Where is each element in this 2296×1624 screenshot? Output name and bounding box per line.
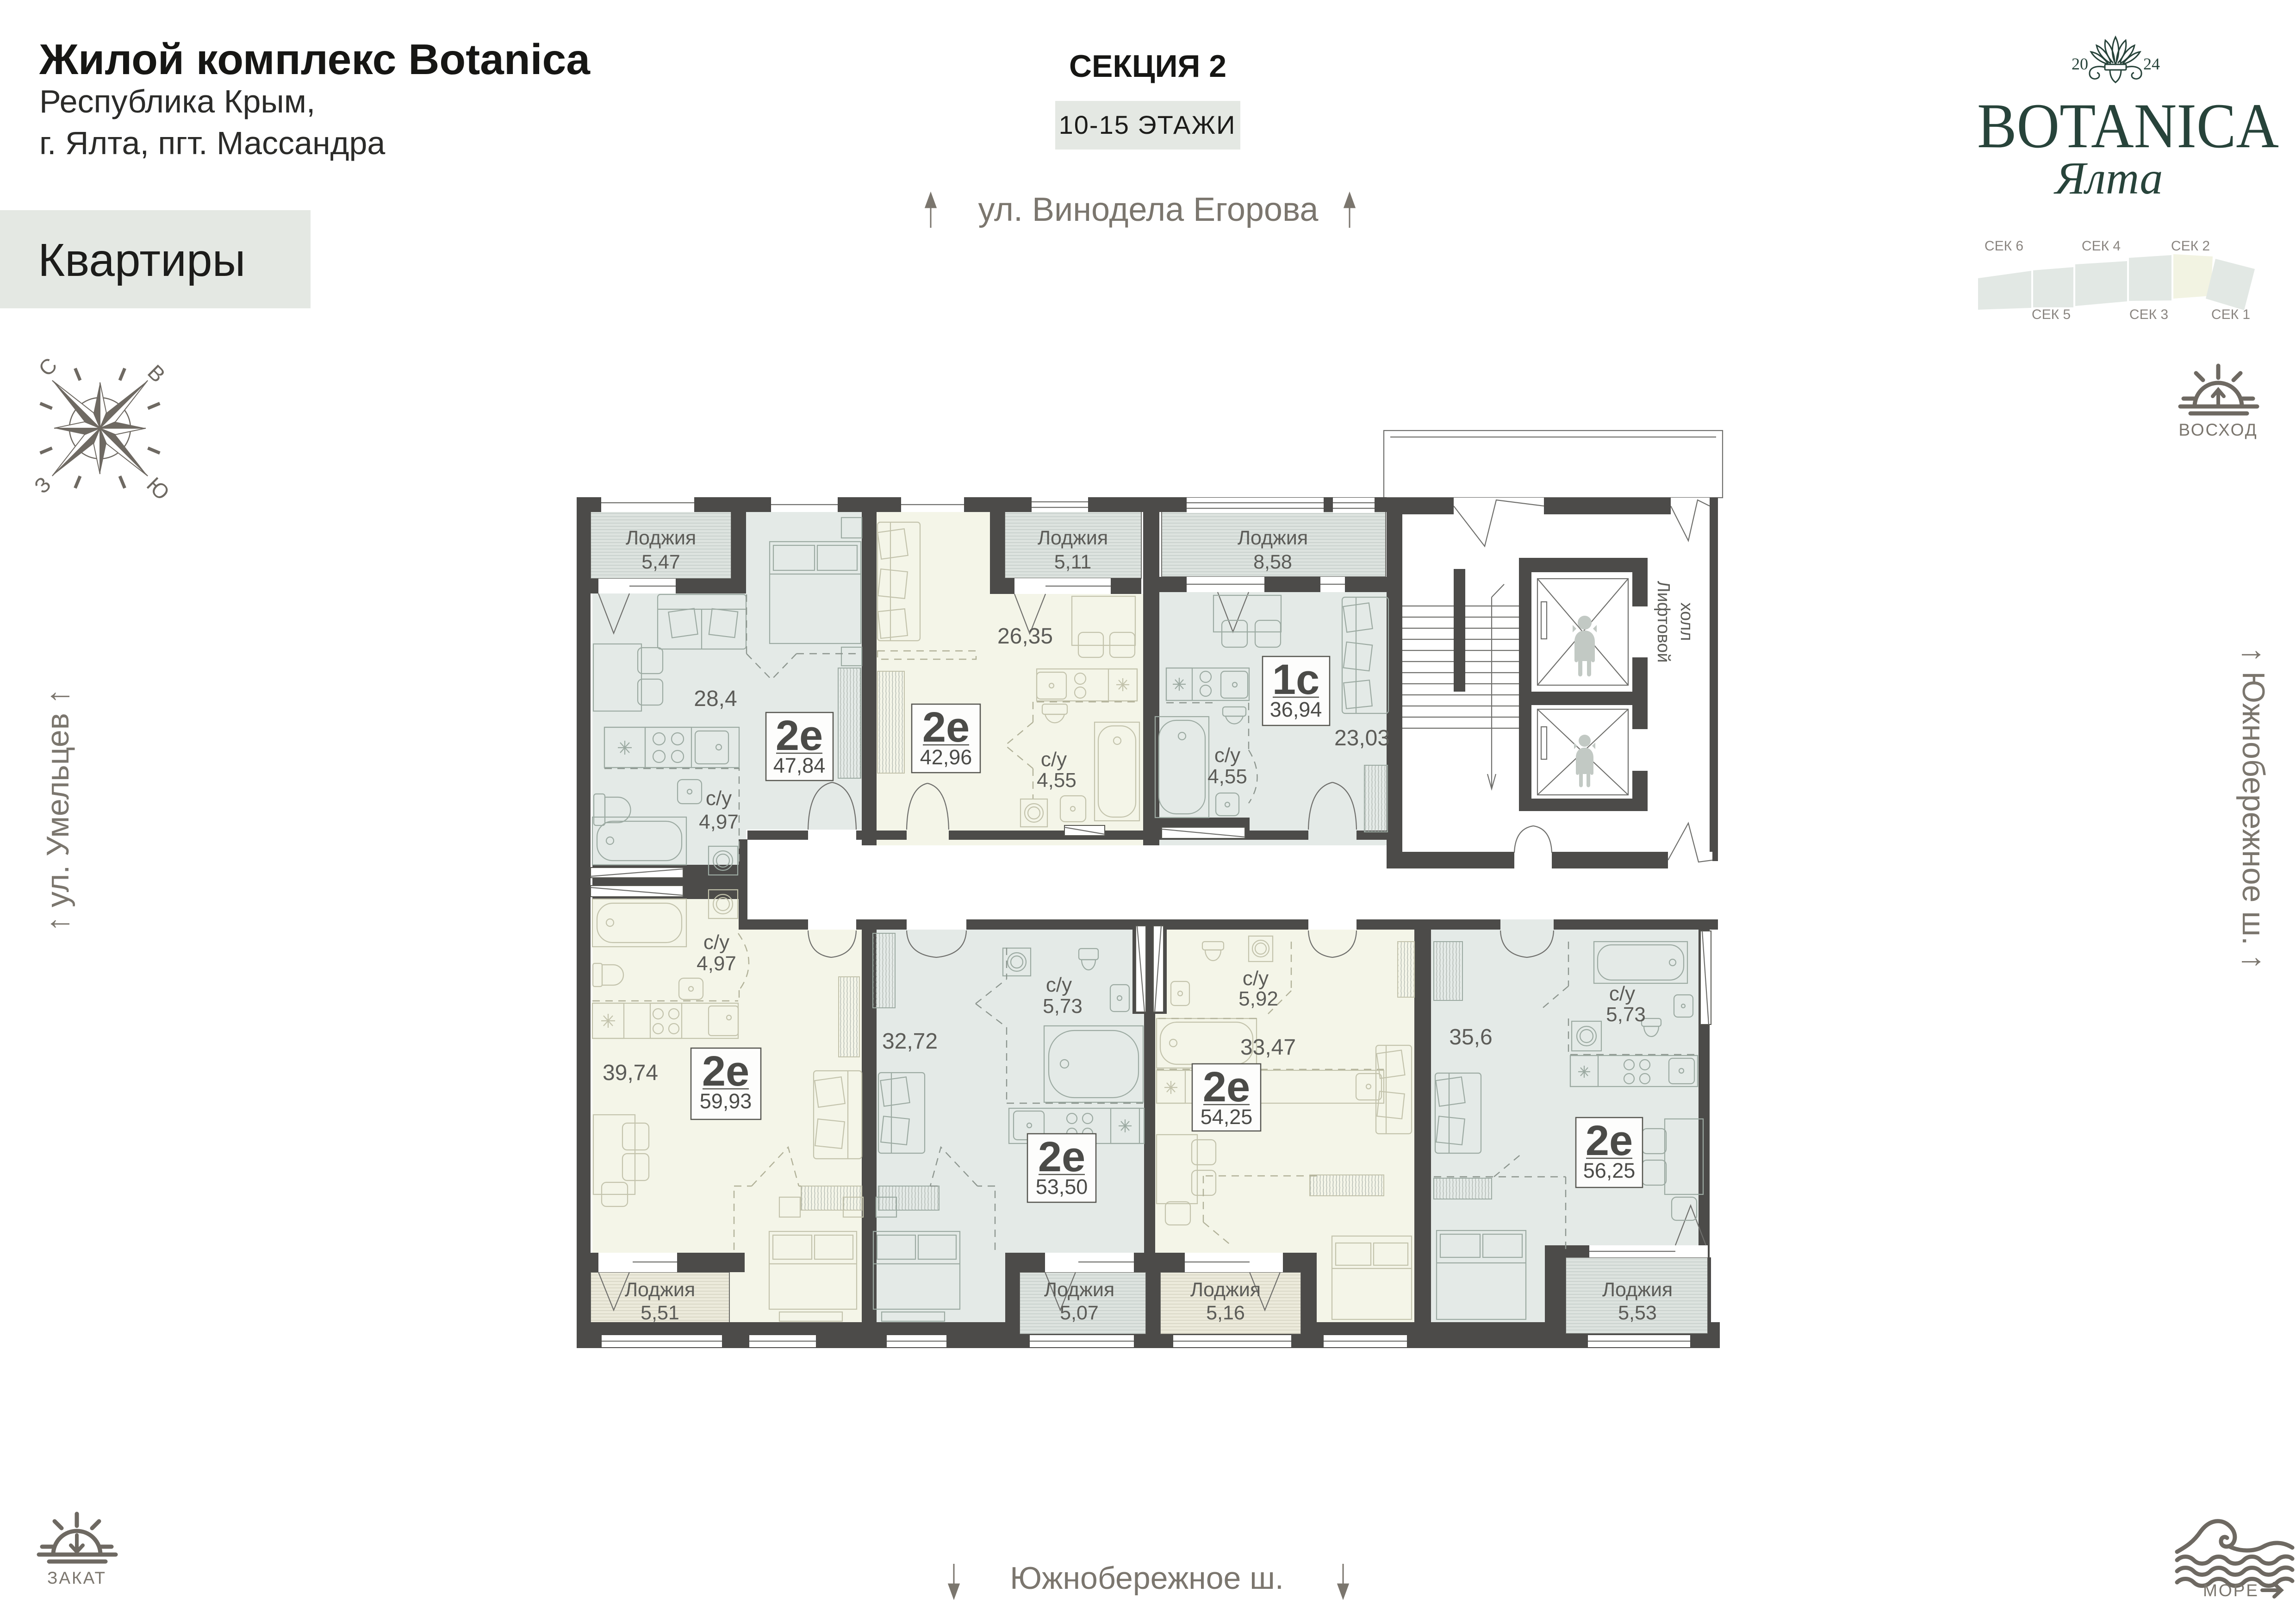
svg-text:36,94: 36,94 — [1270, 698, 1322, 721]
svg-text:с/у: с/у — [1046, 974, 1072, 996]
svg-text:54,25: 54,25 — [1201, 1105, 1253, 1129]
svg-text:СЕК 1: СЕК 1 — [2211, 307, 2250, 322]
svg-text:↑ Южнобережное ш. ↑: ↑ Южнобережное ш. ↑ — [2236, 647, 2271, 969]
svg-text:Жилой комплекс Botanica: Жилой комплекс Botanica — [39, 35, 591, 83]
svg-text:↑ ул. Умельцев ↑: ↑ ул. Умельцев ↑ — [40, 688, 75, 931]
svg-text:с/у: с/у — [1041, 748, 1067, 771]
svg-text:5,07: 5,07 — [1060, 1302, 1099, 1324]
svg-text:2е: 2е — [1038, 1133, 1085, 1181]
svg-text:4,97: 4,97 — [697, 952, 736, 975]
svg-text:39,74: 39,74 — [603, 1061, 658, 1085]
svg-text:с/у: с/у — [1214, 744, 1240, 767]
svg-text:4,97: 4,97 — [699, 811, 739, 833]
svg-text:Республика Крым,: Республика Крым, — [39, 83, 315, 119]
svg-text:с/у: с/у — [1609, 982, 1635, 1005]
svg-text:42,96: 42,96 — [920, 745, 972, 769]
svg-text:5,73: 5,73 — [1043, 995, 1083, 1018]
svg-text:Лифтовой: Лифтовой — [1654, 581, 1673, 663]
svg-text:СЕК 2: СЕК 2 — [2171, 238, 2210, 254]
svg-text:5,53: 5,53 — [1618, 1302, 1657, 1324]
svg-text:Лоджия: Лоджия — [1038, 527, 1108, 549]
svg-text:20: 20 — [2072, 55, 2088, 73]
svg-text:2е: 2е — [1203, 1063, 1250, 1111]
svg-text:47,84: 47,84 — [773, 754, 826, 777]
svg-text:МОРЕ: МОРЕ — [2203, 1581, 2259, 1600]
svg-text:с/у: с/у — [706, 787, 732, 810]
svg-text:СЕКЦИЯ 2: СЕКЦИЯ 2 — [1069, 49, 1226, 84]
svg-text:СЕК 6: СЕК 6 — [1985, 238, 2023, 254]
svg-text:ЗАКАТ: ЗАКАТ — [47, 1568, 106, 1587]
svg-text:ВОСХОД: ВОСХОД — [2178, 420, 2258, 439]
svg-text:5,47: 5,47 — [641, 551, 680, 573]
svg-text:28,4: 28,4 — [694, 687, 737, 711]
svg-text:56,25: 56,25 — [1583, 1159, 1636, 1182]
svg-text:8,58: 8,58 — [1253, 551, 1292, 573]
svg-text:33,47: 33,47 — [1240, 1035, 1296, 1060]
svg-text:26,35: 26,35 — [997, 624, 1053, 649]
svg-text:Лоджия: Лоджия — [1044, 1279, 1114, 1301]
svg-text:24: 24 — [2143, 55, 2160, 73]
svg-text:Квартиры: Квартиры — [38, 234, 245, 286]
svg-text:СЕК 4: СЕК 4 — [2082, 238, 2121, 254]
svg-text:2е: 2е — [922, 704, 970, 751]
svg-text:с/у: с/у — [703, 931, 729, 954]
svg-text:Лоджия: Лоджия — [1602, 1279, 1673, 1301]
svg-text:5,92: 5,92 — [1238, 987, 1278, 1010]
svg-text:Лоджия: Лоджия — [1190, 1279, 1261, 1301]
svg-text:32,72: 32,72 — [882, 1029, 938, 1054]
svg-text:2е: 2е — [702, 1048, 749, 1095]
svg-text:BOTANICA: BOTANICA — [1977, 90, 2279, 161]
svg-text:холл: холл — [1677, 602, 1696, 641]
svg-text:23,03: 23,03 — [1334, 726, 1390, 750]
svg-text:5,73: 5,73 — [1606, 1003, 1646, 1026]
svg-text:Ялта: Ялта — [2053, 152, 2163, 204]
svg-text:53,50: 53,50 — [1036, 1175, 1088, 1199]
svg-text:5,11: 5,11 — [1054, 551, 1092, 573]
svg-text:Лоджия: Лоджия — [625, 1279, 695, 1301]
svg-text:2е: 2е — [1586, 1117, 1633, 1164]
svg-text:с/у: с/у — [1243, 967, 1269, 990]
svg-text:5,51: 5,51 — [641, 1302, 679, 1324]
svg-text:Лоджия: Лоджия — [626, 527, 696, 549]
svg-text:59,93: 59,93 — [700, 1089, 752, 1113]
svg-text:4,55: 4,55 — [1037, 769, 1076, 792]
svg-text:СЕК 5: СЕК 5 — [2032, 307, 2071, 322]
svg-text:г. Ялта, пгт. Массандра: г. Ялта, пгт. Массандра — [39, 125, 385, 161]
svg-text:35,6: 35,6 — [1449, 1025, 1492, 1049]
svg-text:4,55: 4,55 — [1207, 765, 1247, 788]
svg-text:10-15 ЭТАЖИ: 10-15 ЭТАЖИ — [1059, 110, 1236, 139]
svg-text:СЕК 3: СЕК 3 — [2129, 307, 2168, 322]
svg-text:ул. Винодела Егорова: ул. Винодела Егорова — [978, 191, 1319, 228]
svg-text:Лоджия: Лоджия — [1238, 527, 1308, 549]
svg-text:2е: 2е — [776, 712, 823, 759]
svg-text:5,16: 5,16 — [1206, 1302, 1245, 1324]
svg-text:1с: 1с — [1272, 656, 1319, 703]
svg-text:Южнобережное ш.: Южнобережное ш. — [1010, 1561, 1283, 1596]
